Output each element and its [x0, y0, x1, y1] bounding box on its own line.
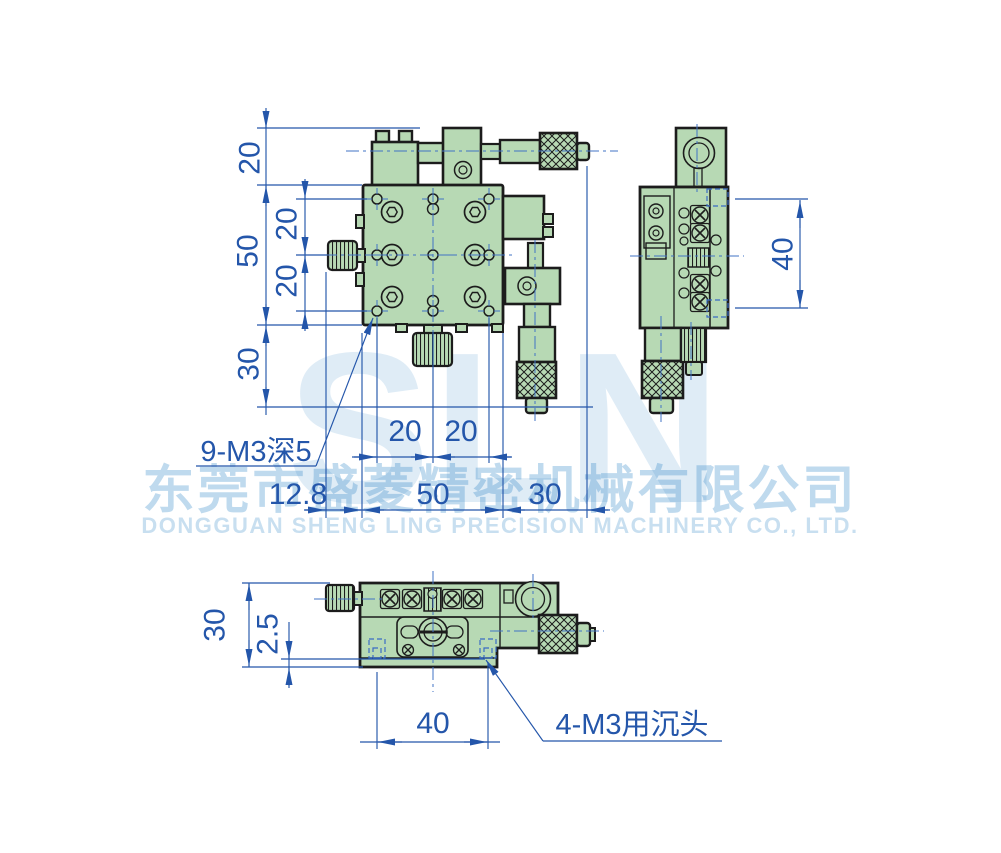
dim-front-col-right: 20: [444, 415, 477, 448]
dim-bottom-plate: 2.5: [252, 613, 285, 655]
dim-front-width: 50: [416, 478, 449, 511]
bottom-view: [314, 571, 604, 692]
bottom-view-knob: [326, 585, 362, 611]
dim-bottom-height: 30: [199, 608, 232, 641]
dim-front-top-offset: 20: [234, 141, 267, 174]
company-watermark: SLN 东莞市盛菱精密机械有限公司 DONGGUAN SHENG LING PR…: [141, 307, 858, 548]
y-micrometer-thimble: [517, 362, 556, 398]
dim-front-col-left: 20: [388, 415, 421, 448]
dim-front-row-lower: 20: [271, 264, 304, 297]
watermark-company-english: DONGGUAN SHENG LING PRECISION MACHINERY …: [141, 513, 858, 538]
dim-bottom-hole-span: 40: [416, 707, 449, 740]
dim-front-bottom-offset: 30: [233, 347, 266, 380]
watermark-company-chinese: 东莞市盛菱精密机械有限公司: [142, 462, 857, 520]
callout-9-m3-holes: 9-M3深5: [200, 436, 311, 468]
stage-drawing-canvas: SLN 东莞市盛菱精密机械有限公司 DONGGUAN SHENG LING PR…: [0, 0, 1001, 853]
bottom-view-micrometer: [539, 615, 595, 653]
dim-side-height: 40: [767, 237, 800, 270]
technical-drawing-page: SLN 东莞市盛菱精密机械有限公司 DONGGUAN SHENG LING PR…: [0, 0, 1001, 853]
dim-front-knob: 12.8: [269, 478, 327, 511]
top-bracket: [372, 142, 418, 186]
dim-front-row-upper: 20: [271, 207, 304, 240]
callout-4-m3-countersunk: 4-M3用沉头: [555, 708, 708, 741]
dim-front-right-offset: 30: [528, 478, 561, 511]
dim-front-height: 50: [232, 234, 265, 267]
side-fine-knob: [681, 328, 706, 362]
